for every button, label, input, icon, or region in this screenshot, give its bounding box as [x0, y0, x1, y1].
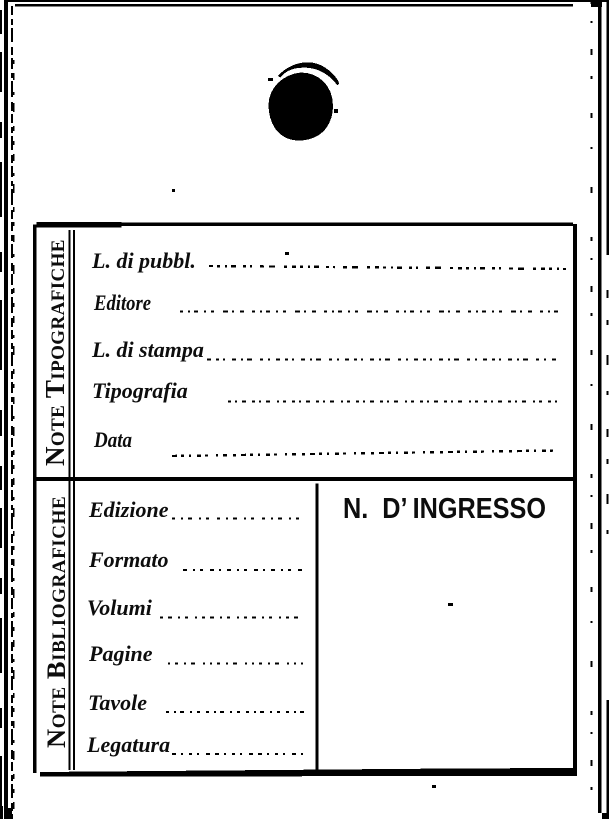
- svg-text:Editore: Editore: [93, 290, 151, 315]
- svg-text:Tavole: Tavole: [88, 690, 147, 715]
- svg-text:Legatura: Legatura: [86, 732, 170, 757]
- svg-text:Note Bibliografiche: Note Bibliografiche: [41, 496, 71, 748]
- svg-text:L. di pubbl.: L. di pubbl.: [91, 248, 196, 273]
- svg-text:Edizione: Edizione: [88, 497, 169, 522]
- svg-text:Formato: Formato: [88, 547, 168, 572]
- svg-text:N. D’ INGRESSO: N. D’ INGRESSO: [343, 493, 546, 525]
- svg-text:Data: Data: [93, 427, 132, 452]
- svg-text:Note Tipografiche: Note Tipografiche: [40, 239, 70, 466]
- svg-text:L. di stampa: L. di stampa: [91, 337, 204, 362]
- svg-text:Pagine: Pagine: [88, 641, 153, 666]
- svg-text:Volumi: Volumi: [87, 595, 153, 620]
- svg-text:Tipografia: Tipografia: [92, 378, 188, 403]
